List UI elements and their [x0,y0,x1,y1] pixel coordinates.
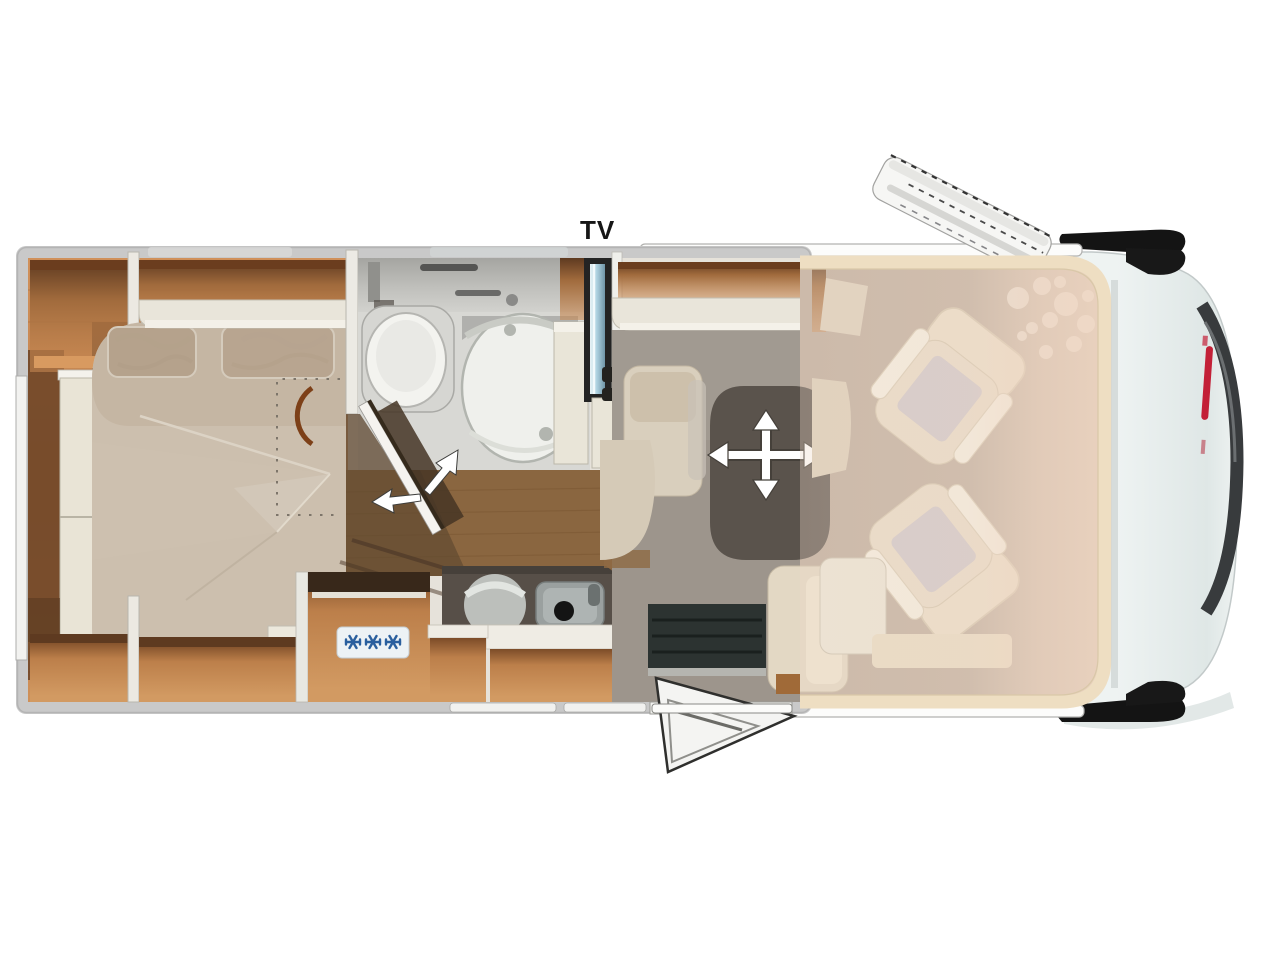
svg-text:TV: TV [580,215,615,245]
